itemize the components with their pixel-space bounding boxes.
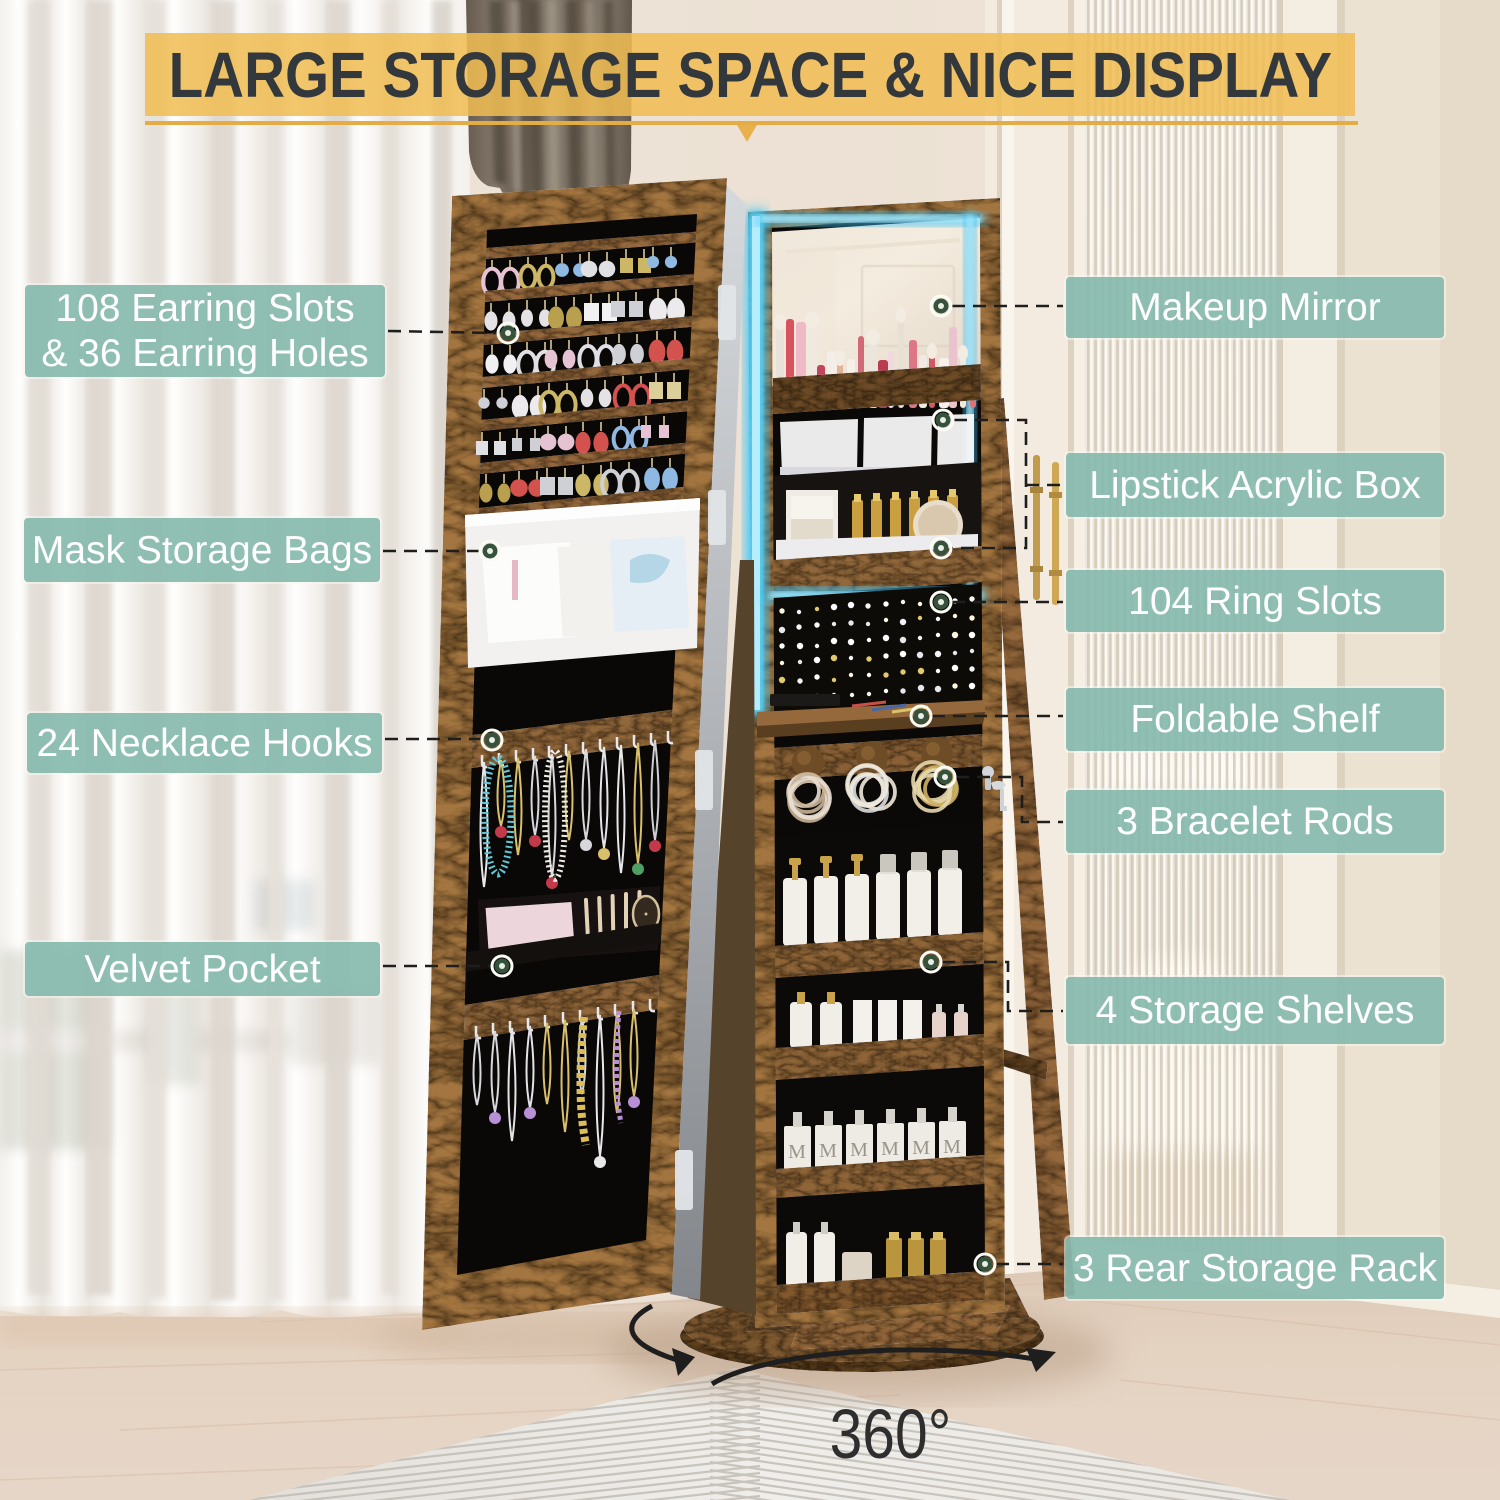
svg-text:M: M (788, 1141, 806, 1163)
svg-text:M: M (943, 1136, 961, 1158)
svg-text:M: M (819, 1140, 837, 1162)
svg-text:M: M (850, 1139, 868, 1161)
svg-text:M: M (912, 1137, 930, 1159)
svg-text:M: M (881, 1138, 899, 1160)
